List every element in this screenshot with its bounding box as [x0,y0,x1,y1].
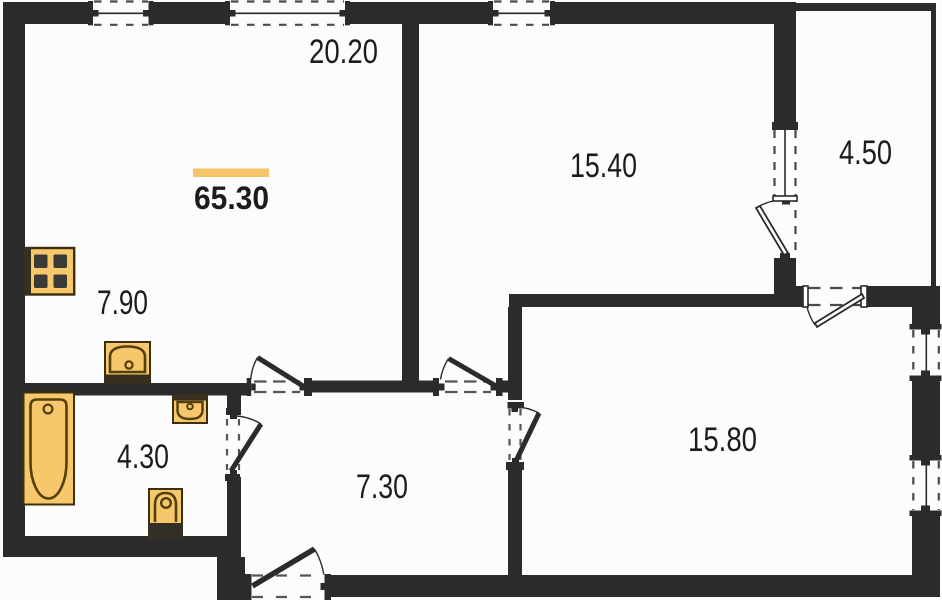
svg-text:7.90: 7.90 [97,284,148,322]
svg-text:15.40: 15.40 [570,147,637,185]
svg-text:4.30: 4.30 [117,438,169,476]
svg-text:65.30: 65.30 [194,180,269,216]
svg-text:15.80: 15.80 [688,421,757,459]
svg-text:20.20: 20.20 [309,33,378,71]
svg-text:7.30: 7.30 [356,468,408,506]
svg-text:4.50: 4.50 [839,134,892,172]
